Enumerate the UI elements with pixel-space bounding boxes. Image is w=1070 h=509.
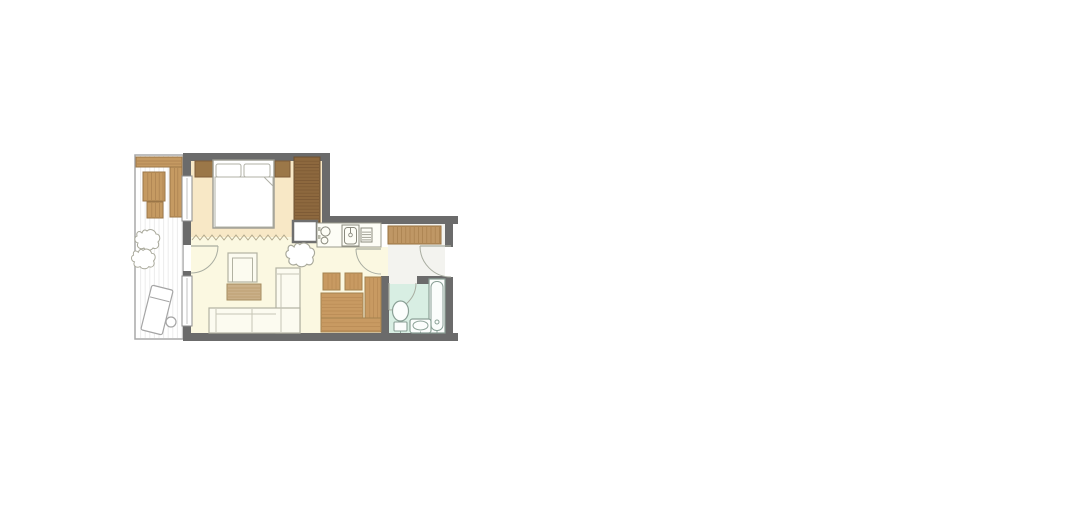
floor-plan-screenshot xyxy=(40,16,1070,493)
wall-living-bath xyxy=(381,276,389,333)
apartment-floor-plan xyxy=(40,16,1070,493)
sofa-seat xyxy=(209,308,300,333)
stove-control xyxy=(318,227,321,231)
balcony-bench-side xyxy=(170,167,182,217)
balcony-bench-top xyxy=(136,157,182,167)
corner-bench-horizontal xyxy=(321,318,381,332)
utility-column xyxy=(293,221,317,242)
bed-pillow-right xyxy=(244,164,270,177)
balcony-plant-icon xyxy=(132,249,156,269)
coffee-table xyxy=(227,284,261,300)
wall-right-lower xyxy=(445,277,453,341)
wall-bottom xyxy=(183,333,458,341)
wall-left-middle xyxy=(183,220,191,245)
toilet-tank xyxy=(394,322,407,331)
balcony-plant-icon xyxy=(135,230,160,251)
stove-control xyxy=(318,235,321,239)
bath-doorway-floor xyxy=(389,276,417,284)
dining-chair xyxy=(323,273,340,290)
toilet-bowl xyxy=(393,301,409,321)
bed-pillow-left xyxy=(216,164,241,177)
kitchen-hall-doorway-floor xyxy=(381,247,389,276)
nightstand-right xyxy=(275,161,290,177)
wall-bedroom-right xyxy=(322,153,330,223)
balcony-side-table xyxy=(166,317,176,327)
wall-right-upper xyxy=(445,224,453,247)
nightstand-left xyxy=(195,161,213,177)
balcony-stool xyxy=(147,202,163,218)
balcony-table xyxy=(143,172,165,201)
living-plant-icon xyxy=(286,243,315,267)
wall-left-upper xyxy=(183,153,191,177)
dining-chair xyxy=(345,273,362,290)
bed-duvet xyxy=(215,177,273,227)
